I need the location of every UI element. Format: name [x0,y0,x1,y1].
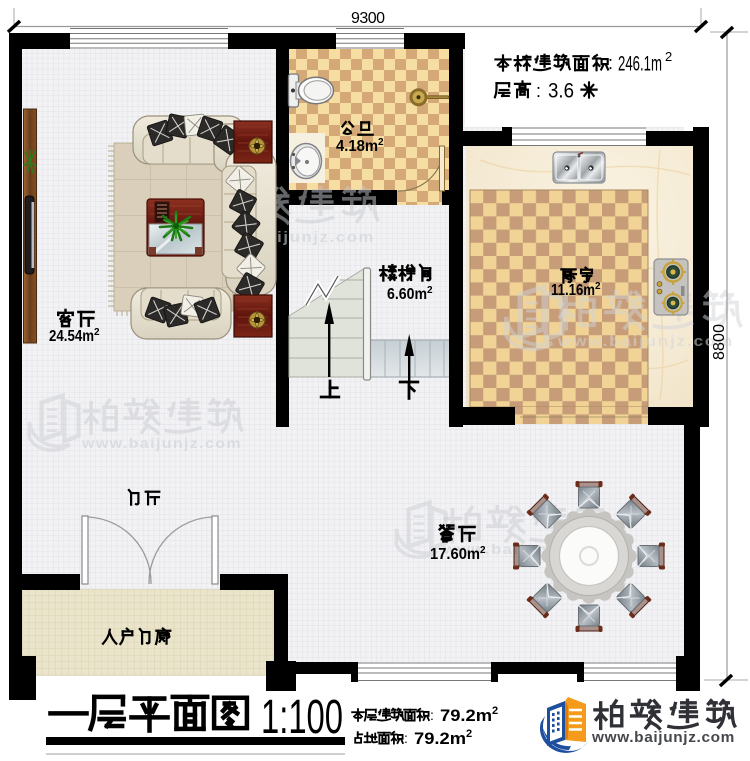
svg-text:11.16m: 11.16m [551,282,595,299]
svg-text::: : [430,707,434,723]
svg-text:www.baijunjz.com: www.baijunjz.com [81,435,242,451]
svg-text:4.18m: 4.18m [336,138,378,155]
svg-text::: : [608,53,613,73]
svg-text:2: 2 [427,285,433,296]
svg-text:8800: 8800 [711,324,728,360]
svg-text:2: 2 [480,545,486,556]
svg-text:2: 2 [492,705,498,717]
svg-text:2: 2 [665,49,672,64]
svg-text:www.baijunjz.com: www.baijunjz.com [591,730,735,746]
svg-text::: : [536,81,541,101]
svg-text:1:100: 1:100 [261,691,343,744]
svg-text:79.2m: 79.2m [440,706,492,725]
svg-text:www.baijunjz.com: www.baijunjz.com [557,333,734,350]
svg-text:2: 2 [466,728,472,740]
svg-text:6.60m: 6.60m [387,286,427,303]
svg-text:9300: 9300 [351,10,385,27]
svg-text:2: 2 [595,281,601,292]
svg-text:246.1m: 246.1m [618,53,662,76]
svg-text:3.6: 3.6 [548,80,574,103]
svg-text:2: 2 [94,327,100,338]
svg-text:79.2m: 79.2m [414,729,466,748]
svg-text:24.54m: 24.54m [49,328,94,345]
svg-text::: : [404,730,408,746]
svg-text:2: 2 [378,137,384,148]
svg-text:17.60m: 17.60m [430,546,480,563]
